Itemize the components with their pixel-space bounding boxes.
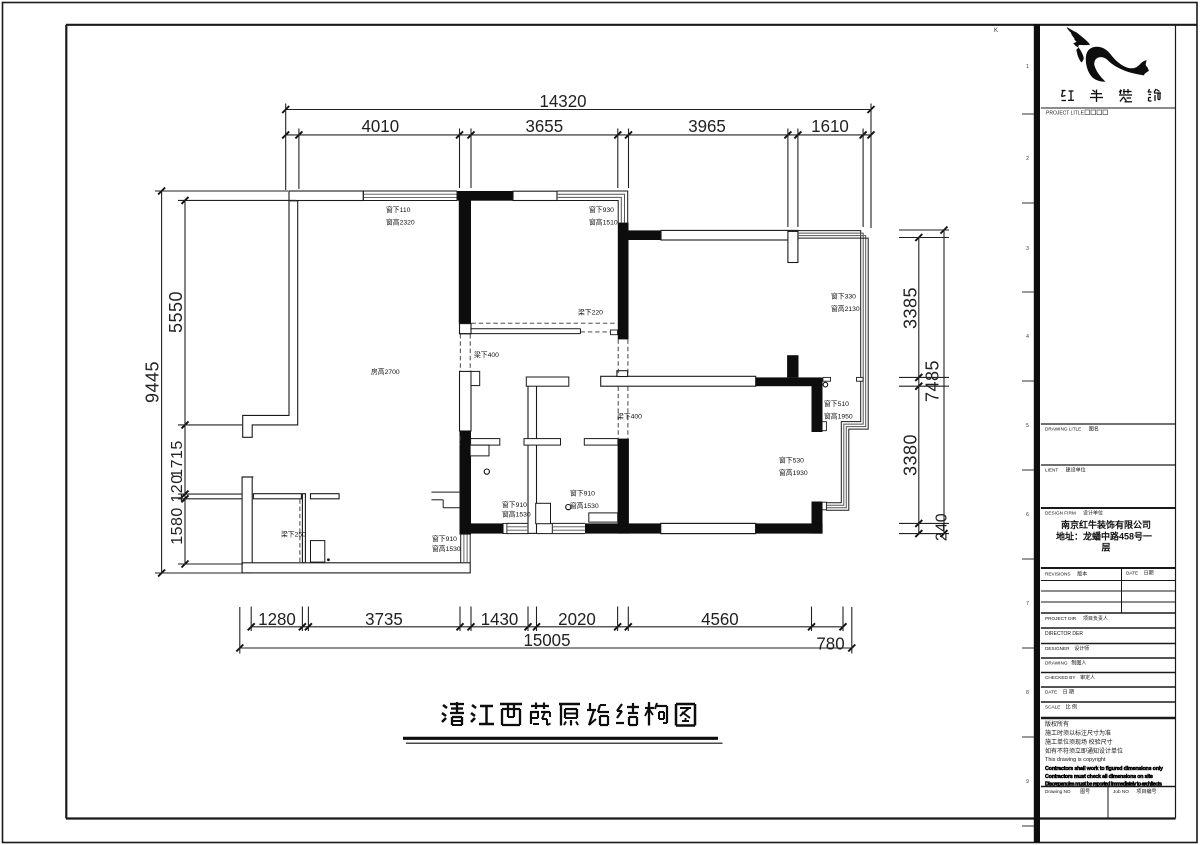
svg-text:7485: 7485: [923, 360, 943, 402]
svg-text:窗下510: 窗下510: [824, 399, 849, 408]
svg-text:南京红牛装饰有限公司: 南京红牛装饰有限公司: [1061, 519, 1151, 530]
svg-text:梁下400: 梁下400: [474, 350, 499, 359]
svg-text:窗下930: 窗下930: [589, 205, 614, 214]
svg-text:比 例: 比 例: [1066, 704, 1077, 711]
svg-text:5: 5: [1026, 423, 1029, 429]
svg-text:窗高1510: 窗高1510: [589, 218, 618, 227]
svg-text:日 期: 日 期: [1063, 690, 1074, 696]
svg-text:DRAWING: DRAWING: [1045, 661, 1068, 666]
svg-text:9445: 9445: [143, 361, 163, 403]
svg-text:梁下220: 梁下220: [578, 308, 603, 317]
svg-text:1580: 1580: [169, 507, 186, 545]
svg-text:5550: 5550: [166, 291, 186, 333]
svg-text:梁下250: 梁下250: [281, 530, 306, 539]
svg-text:窗高1530: 窗高1530: [570, 501, 599, 510]
svg-text:Drawing NO: Drawing NO: [1045, 789, 1071, 794]
svg-text:PROJECT LITLE: PROJECT LITLE: [1046, 111, 1085, 117]
svg-text:设计单位: 设计单位: [1083, 510, 1103, 517]
svg-text:LIENT: LIENT: [1045, 468, 1058, 473]
svg-text:施工时须以标注尺寸为准: 施工时须以标注尺寸为准: [1045, 729, 1111, 737]
svg-text:1280: 1280: [258, 609, 296, 630]
svg-text:K: K: [994, 28, 998, 34]
svg-text:3385: 3385: [901, 287, 921, 329]
svg-text:15005: 15005: [523, 629, 570, 650]
svg-text:Contractors shall work to figu: Contractors shall work to figured dimens…: [1045, 766, 1163, 772]
svg-text:4560: 4560: [701, 609, 739, 630]
svg-text:图号: 图号: [1080, 789, 1090, 795]
svg-text:3965: 3965: [688, 116, 726, 137]
svg-text:窗下110: 窗下110: [386, 205, 411, 214]
svg-text:Discrepancies must be reported: Discrepancies must be reported immediate…: [1045, 782, 1162, 788]
svg-text:DIRECTOR DER: DIRECTOR DER: [1045, 631, 1083, 637]
svg-text:DESIGNER: DESIGNER: [1045, 646, 1070, 651]
svg-text:1: 1: [1026, 64, 1029, 70]
svg-text:版本: 版本: [1077, 571, 1087, 578]
svg-text:Contractors must check all dim: Contractors must check all dimensions on…: [1045, 774, 1153, 780]
svg-text:3380: 3380: [901, 434, 921, 476]
svg-text:窗下530: 窗下530: [779, 456, 804, 465]
svg-text:1430: 1430: [481, 609, 519, 630]
svg-text:窗高1950: 窗高1950: [824, 412, 853, 421]
svg-text:4: 4: [1026, 334, 1029, 340]
svg-text:房高2700: 房高2700: [371, 367, 400, 376]
svg-text:梁下400: 梁下400: [617, 412, 642, 421]
svg-text:9: 9: [1026, 779, 1029, 785]
svg-text:DATE: DATE: [1045, 690, 1057, 695]
svg-text:8: 8: [1026, 690, 1029, 696]
svg-text:PROJECT DIR: PROJECT DIR: [1045, 616, 1077, 621]
svg-text:窗下910: 窗下910: [432, 534, 457, 543]
svg-text:窗高2130: 窗高2130: [831, 304, 860, 313]
svg-text:7: 7: [1026, 601, 1029, 607]
svg-text:SCALE: SCALE: [1045, 705, 1060, 710]
svg-text:项目编号: 项目编号: [1136, 788, 1156, 795]
svg-text:This drawing is copyright: This drawing is copyright: [1045, 757, 1106, 763]
svg-text:1715: 1715: [169, 440, 186, 478]
svg-text:REVISIONS: REVISIONS: [1045, 572, 1071, 577]
svg-text:DRAWING LITLE: DRAWING LITLE: [1045, 427, 1081, 432]
svg-text:如有不符须立即通知设计单位: 如有不符须立即通知设计单位: [1045, 747, 1123, 755]
svg-text:DATE: DATE: [1126, 571, 1138, 576]
svg-text:CHECKED BY: CHECKED BY: [1045, 675, 1076, 680]
svg-text:层: 层: [1101, 543, 1110, 553]
svg-text:3: 3: [1026, 246, 1029, 252]
svg-text:制图人: 制图人: [1071, 660, 1086, 667]
svg-text:窗下910: 窗下910: [570, 489, 595, 498]
svg-text:14320: 14320: [539, 91, 586, 112]
svg-text:DESIGN FIRM: DESIGN FIRM: [1045, 511, 1076, 516]
svg-text:2: 2: [1026, 156, 1029, 162]
svg-text:建设单位: 建设单位: [1066, 467, 1086, 474]
svg-text:1610: 1610: [811, 116, 849, 137]
svg-text:版权所有: 版权所有: [1045, 720, 1069, 728]
svg-text:施工单位须现场 校验尺寸: 施工单位须现场 校验尺寸: [1045, 738, 1113, 746]
svg-text:3655: 3655: [525, 116, 563, 137]
svg-text:窗高1530: 窗高1530: [432, 544, 461, 553]
svg-text:窗下910: 窗下910: [502, 500, 527, 509]
svg-text:窗下330: 窗下330: [831, 292, 856, 301]
svg-text:4010: 4010: [361, 116, 399, 137]
svg-text:审定人: 审定人: [1080, 674, 1095, 681]
svg-text:780: 780: [816, 633, 844, 654]
svg-text:6: 6: [1026, 512, 1029, 518]
svg-text:设计师: 设计师: [1074, 645, 1089, 652]
svg-text:地址：龙蟠中路458号一: 地址：龙蟠中路458号一: [1056, 531, 1152, 542]
svg-text:窗高1530: 窗高1530: [502, 510, 531, 519]
svg-text:Job NO: Job NO: [1113, 789, 1129, 794]
svg-text:项目负责人: 项目负责人: [1083, 615, 1108, 622]
svg-text:窗高1930: 窗高1930: [779, 468, 808, 477]
svg-text:窗高2320: 窗高2320: [386, 218, 415, 227]
svg-text:日期: 日期: [1144, 571, 1154, 577]
svg-text:3735: 3735: [365, 609, 403, 630]
svg-text:2020: 2020: [558, 609, 596, 630]
svg-text:图名: 图名: [1089, 426, 1099, 433]
